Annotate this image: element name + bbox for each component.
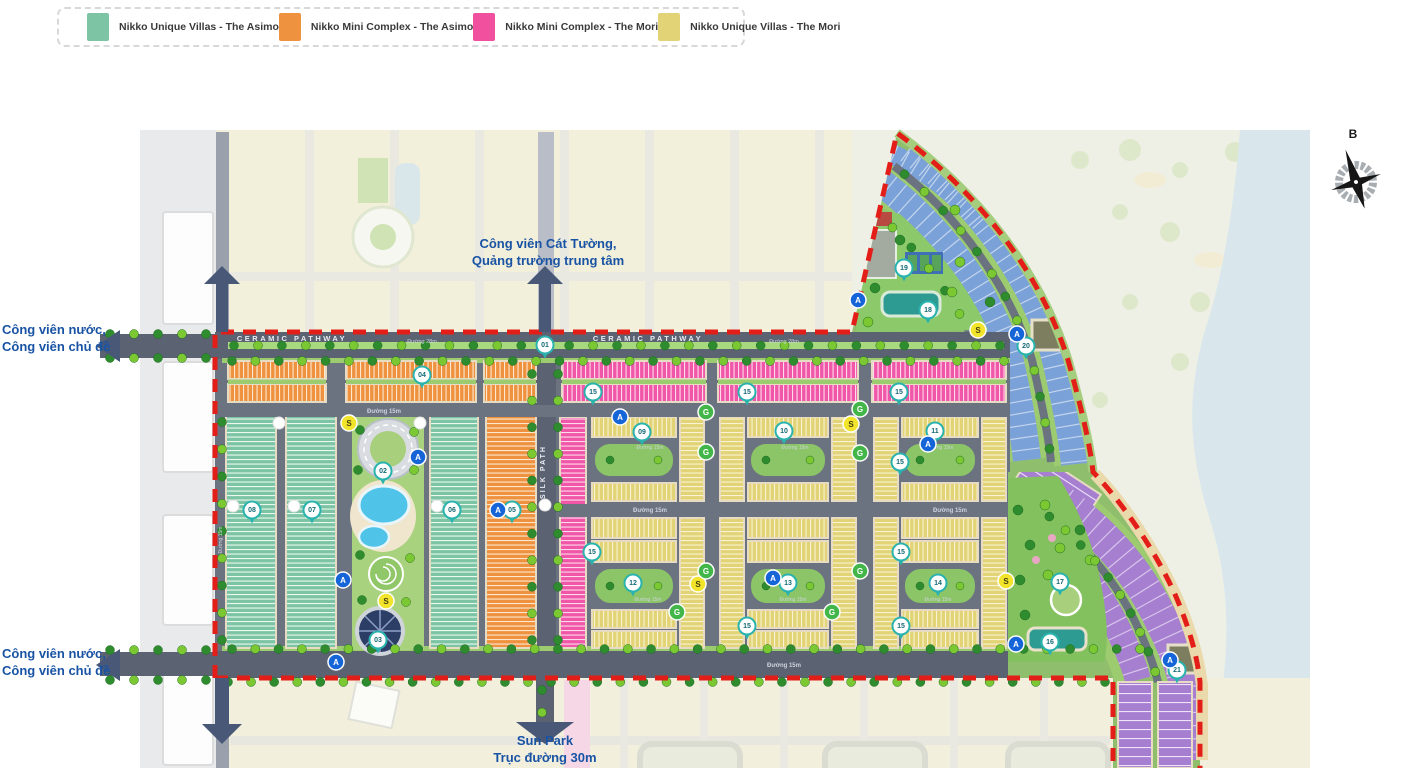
svg-text:G: G [703, 448, 709, 457]
housing-block [346, 361, 476, 379]
svg-text:06: 06 [448, 507, 456, 514]
legend-label: Nikko Unique Villas - The Mori [690, 21, 840, 33]
road-label: Đường 15m [633, 508, 667, 514]
road-label: CERAMIC PATHWAY [237, 334, 347, 343]
amenity-badge-g: G [852, 563, 868, 579]
svg-text:A: A [1013, 640, 1019, 649]
svg-text:S: S [383, 597, 389, 606]
svg-text:13: 13 [784, 580, 792, 587]
amenity-badge-s: S [341, 415, 357, 431]
svg-text:A: A [1014, 330, 1020, 339]
amenity-badge-a: A [765, 570, 781, 586]
svg-text:07: 07 [308, 507, 316, 514]
amenity-badge-a: A [1162, 652, 1178, 668]
housing-block [592, 541, 676, 562]
svg-text:15: 15 [588, 549, 596, 556]
svg-text:A: A [495, 506, 501, 515]
lagoon-pool [359, 486, 409, 524]
housing-block [592, 518, 676, 538]
housing-block [680, 417, 704, 501]
svg-text:17: 17 [1056, 579, 1064, 586]
amenity-badge-a: A [335, 572, 351, 588]
svg-text:A: A [333, 658, 339, 667]
svg-text:18: 18 [924, 307, 932, 314]
housing-block [592, 483, 676, 501]
svg-text:S: S [346, 419, 352, 428]
housing-block [430, 414, 478, 648]
svg-text:15: 15 [896, 459, 904, 466]
road-label: Đường 15m [780, 597, 807, 603]
lot-label-dot [227, 500, 239, 512]
housing-block [748, 518, 828, 538]
legend-swatch [87, 13, 109, 41]
legend-swatch [473, 13, 495, 41]
housing-block [902, 610, 978, 628]
amenity-badge-a: A [850, 292, 866, 308]
legend-item-3: Nikko Unique Villas - The Mori [658, 13, 840, 41]
svg-text:15: 15 [897, 549, 905, 556]
amenity-badge-g: G [669, 604, 685, 620]
amenity-badge-g: G [698, 563, 714, 579]
annotation-line: Công viên chủ đề [2, 663, 105, 680]
svg-text:A: A [1167, 656, 1173, 665]
svg-text:15: 15 [895, 389, 903, 396]
legend-swatch [279, 13, 301, 41]
amenity-badge-a: A [490, 502, 506, 518]
lot-label-dot [539, 499, 551, 511]
legend-item-1: Nikko Mini Complex - The Asimo [279, 13, 473, 41]
housing-block [902, 483, 978, 501]
svg-text:A: A [855, 296, 861, 305]
legend-item-0: Nikko Unique Villas - The Asimo [87, 13, 279, 41]
housing-block [228, 384, 326, 402]
svg-text:08: 08 [248, 507, 256, 514]
amenity-badge-g: G [824, 604, 840, 620]
compass-north-label: B [1349, 127, 1358, 141]
masterplan-page: CERAMIC PATHWAYCERAMIC PATHWAYĐường 28mĐ… [0, 0, 1407, 768]
amenity-badge-s: S [378, 593, 394, 609]
svg-text:02: 02 [379, 468, 387, 475]
annotation-sun-park: Sun Park Trục đường 30m [493, 733, 596, 767]
svg-text:21: 21 [1173, 667, 1181, 674]
amenity-badge-g: G [852, 401, 868, 417]
annotation-line: Trục đường 30m [493, 750, 596, 767]
svg-text:G: G [703, 408, 709, 417]
annotation-line: Công viên Cát Tường, [472, 236, 624, 253]
compass-rose: B [1320, 124, 1392, 224]
svg-text:16: 16 [1046, 639, 1054, 646]
housing-block [748, 610, 828, 628]
housing-block [286, 414, 336, 648]
svg-text:A: A [770, 574, 776, 583]
svg-text:A: A [617, 413, 623, 422]
housing-block [902, 518, 978, 538]
context-building [163, 212, 213, 324]
legend-label: Nikko Mini Complex - The Mori [505, 21, 658, 33]
amenity-badge-g: G [852, 445, 868, 461]
svg-text:15: 15 [589, 389, 597, 396]
road-label: Đường 28m [407, 339, 437, 345]
svg-text:01: 01 [541, 342, 549, 349]
housing-block [560, 417, 586, 648]
svg-text:15: 15 [897, 623, 905, 630]
road-label: SILK PATH [540, 445, 547, 499]
svg-text:A: A [340, 576, 346, 585]
road-label: CERAMIC PATHWAY [593, 334, 703, 343]
spiral-garden [369, 557, 403, 591]
svg-text:S: S [975, 326, 981, 335]
road-label: Đường 15m [925, 597, 952, 603]
annotation-line: Công viên nước, [2, 646, 105, 663]
svg-text:03: 03 [374, 637, 382, 644]
annotation-top-park: Công viên Cát Tường, Quảng trường trung … [472, 236, 624, 270]
amenity-badge-g: G [698, 404, 714, 420]
svg-text:G: G [674, 608, 680, 617]
annotation-line: Sun Park [493, 733, 596, 750]
svg-text:04: 04 [418, 372, 426, 379]
housing-block [982, 417, 1006, 501]
housing-block [720, 417, 744, 501]
amenity-badge-a: A [612, 409, 628, 425]
svg-text:09: 09 [638, 429, 646, 436]
lot-label-dot [431, 500, 443, 512]
housing-block [346, 384, 476, 402]
svg-text:20: 20 [1022, 343, 1030, 350]
annotation-line: Công viên chủ đề [2, 339, 105, 356]
svg-text:G: G [857, 405, 863, 414]
svg-text:S: S [848, 420, 854, 429]
amenity-badge-a: A [1008, 636, 1024, 652]
lot-label-dot [288, 500, 300, 512]
svg-text:S: S [1003, 577, 1009, 586]
road-label: Đường 15m [782, 445, 809, 451]
amenity-badge-a: A [410, 449, 426, 465]
svg-text:12: 12 [629, 580, 637, 587]
road-label: Đường 28m [769, 339, 799, 345]
annotation-line: Quảng trường trung tâm [472, 253, 624, 270]
housing-block [1118, 682, 1152, 768]
amenity-badge-s: S [843, 416, 859, 432]
svg-text:A: A [415, 453, 421, 462]
amenity-badge-g: G [698, 444, 714, 460]
amenity-badge-a: A [920, 436, 936, 452]
site-map: CERAMIC PATHWAYCERAMIC PATHWAYĐường 28mĐ… [0, 0, 1407, 768]
context-building [163, 515, 213, 625]
context-building [163, 362, 213, 472]
legend-swatch [658, 13, 680, 41]
svg-text:14: 14 [934, 580, 942, 587]
amenity-badge-a: A [1009, 326, 1025, 342]
housing-block [226, 414, 276, 648]
amenity-badge-a: A [328, 654, 344, 670]
housing-block [832, 518, 856, 648]
svg-text:A: A [925, 440, 931, 449]
road-label: Đường 15m [635, 597, 662, 603]
annotation-left-park-bottom: Công viên nước, Công viên chủ đề [2, 646, 105, 680]
annotation-line: Công viên nước, [2, 322, 105, 339]
legend-label: Nikko Mini Complex - The Asimo [311, 21, 473, 33]
housing-block [902, 631, 978, 648]
svg-text:10: 10 [780, 428, 788, 435]
svg-text:G: G [857, 449, 863, 458]
svg-text:G: G [703, 567, 709, 576]
svg-text:15: 15 [743, 623, 751, 630]
road-label: Đường 15m [367, 409, 401, 415]
svg-text:11: 11 [931, 428, 939, 435]
lot-label-dot [273, 417, 285, 429]
svg-text:S: S [695, 580, 701, 589]
svg-text:05: 05 [508, 507, 516, 514]
svg-text:19: 19 [900, 265, 908, 272]
road-label: Đường 15m [637, 445, 664, 451]
housing-block [902, 541, 978, 562]
housing-block [748, 483, 828, 501]
compass-star [1321, 142, 1390, 217]
legend-item-2: Nikko Mini Complex - The Mori [473, 13, 658, 41]
annotation-left-park-top: Công viên nước, Công viên chủ đề [2, 322, 105, 356]
amenity-badge-s: S [998, 573, 1014, 589]
lot-label-dot [414, 417, 426, 429]
housing-block [1158, 682, 1192, 768]
housing-block [592, 610, 676, 628]
svg-text:G: G [857, 567, 863, 576]
amenity-badge-s: S [970, 322, 986, 338]
legend: Nikko Unique Villas - The AsimoNikko Min… [57, 7, 745, 47]
road-label: Đường 15m [933, 508, 967, 514]
svg-text:G: G [829, 608, 835, 617]
road-label: Đường 15m [218, 527, 224, 554]
housing-block [872, 361, 1006, 379]
road-label: Đường 15m [767, 663, 801, 669]
legend-label: Nikko Unique Villas - The Asimo [119, 21, 279, 33]
housing-block [748, 541, 828, 562]
svg-text:15: 15 [743, 389, 751, 396]
